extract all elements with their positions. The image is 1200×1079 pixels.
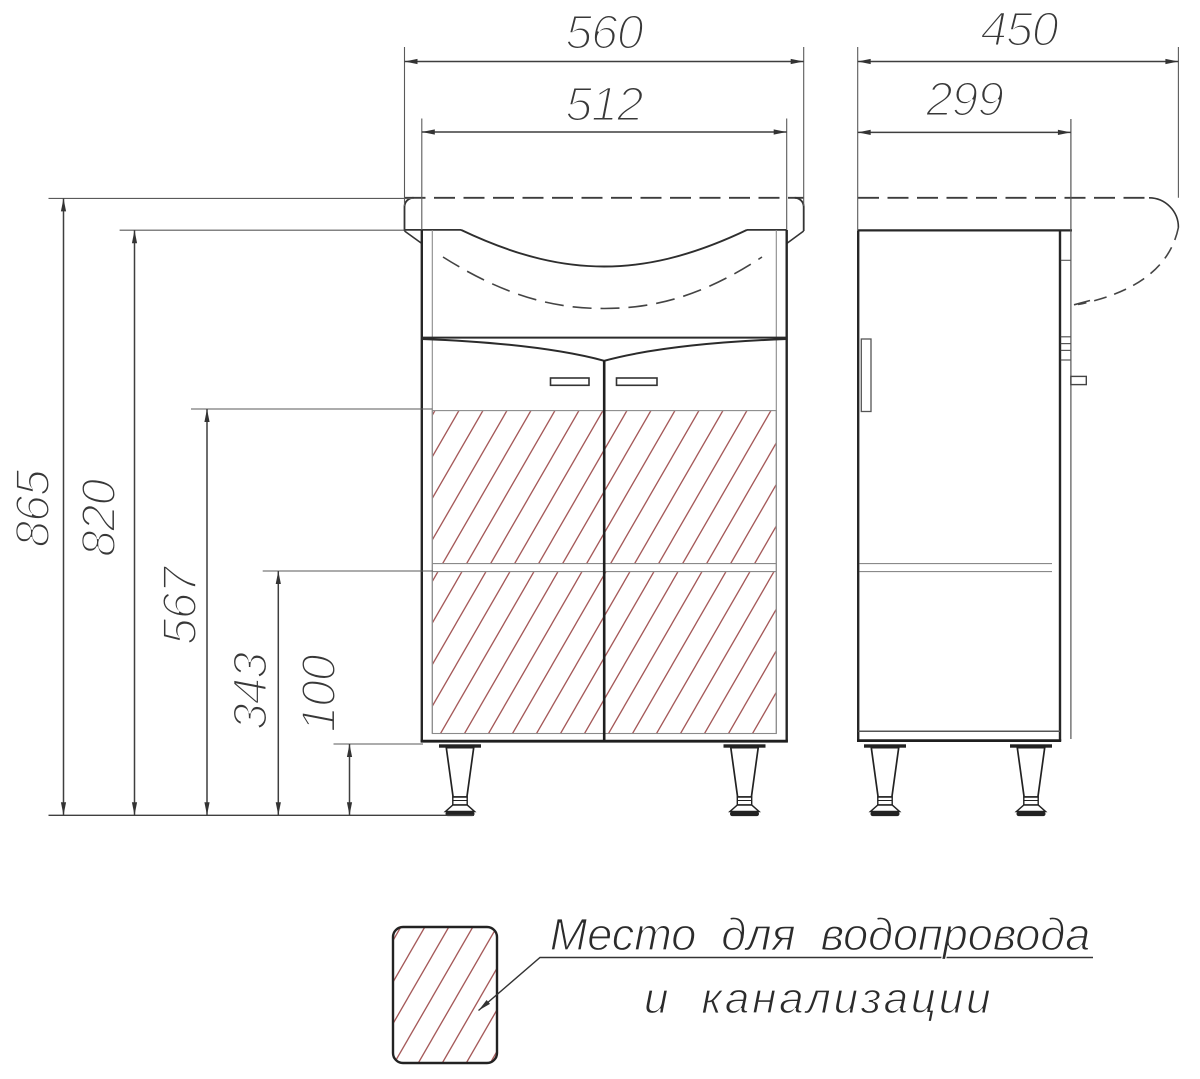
svg-text:567: 567: [154, 565, 207, 645]
svg-text:Место для водопровода: Место для водопровода: [550, 909, 1090, 960]
svg-text:и канализации: и канализации: [644, 974, 993, 1023]
svg-text:100: 100: [293, 654, 346, 732]
svg-text:560: 560: [565, 7, 643, 60]
svg-text:299: 299: [925, 74, 1003, 127]
svg-text:820: 820: [73, 479, 126, 557]
svg-text:512: 512: [565, 79, 642, 132]
svg-text:343: 343: [225, 652, 278, 730]
svg-text:450: 450: [980, 4, 1058, 57]
svg-text:865: 865: [7, 469, 60, 547]
